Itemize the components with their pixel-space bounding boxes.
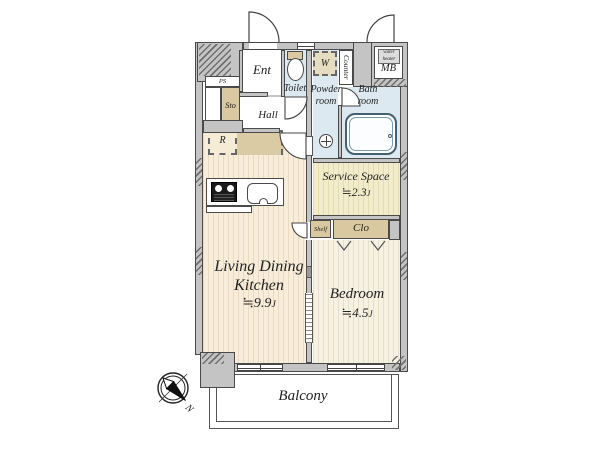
floor-plan: R water heater MB PS Sto W Counter Shelf… xyxy=(0,0,600,450)
bathtub-inner xyxy=(349,117,393,151)
meter-box-door-swing xyxy=(367,15,394,42)
washbasin xyxy=(319,134,333,148)
kitchen-lower-shelf xyxy=(206,206,252,213)
wall-powder-bath xyxy=(338,105,342,158)
service-space-label: Service Space xyxy=(314,169,398,183)
entrance-label: Ent xyxy=(243,62,281,78)
balcony-label: Balcony xyxy=(248,387,358,405)
stove-burner xyxy=(227,185,234,192)
left-compartment xyxy=(205,87,221,121)
sink xyxy=(247,183,278,204)
wall-below-storage xyxy=(203,120,243,133)
partition-pocket-door xyxy=(305,136,313,156)
hall-label: Hall xyxy=(248,109,288,122)
hatch-right-lower xyxy=(401,252,407,280)
wardrobe-box: W xyxy=(313,51,337,76)
hatch-left-upper xyxy=(196,158,202,186)
compass: N xyxy=(146,361,200,415)
counter-column: Counter xyxy=(339,50,353,85)
wall-hall-ldk xyxy=(243,128,280,133)
wall-right xyxy=(400,42,408,372)
wall-ent-hall xyxy=(238,92,268,97)
pipe-space-box: PS xyxy=(205,76,240,87)
storage-box: Sto xyxy=(221,87,240,121)
bedroom-area: ≒4.5J xyxy=(317,305,397,321)
meter-box-label: MB xyxy=(374,63,403,77)
powder-room-label: Powder room xyxy=(306,84,346,108)
kitchen-zone xyxy=(237,130,283,155)
bath-room-label: Bath room xyxy=(350,84,386,108)
closet-box: Clo xyxy=(333,219,389,239)
sink-faucet xyxy=(259,198,268,204)
ldk-label: Living Dining Kitchen xyxy=(200,257,318,295)
compass-north-label: N xyxy=(182,402,196,415)
stove-burner xyxy=(215,185,222,192)
stove-grill xyxy=(214,194,234,201)
wall-closet-right xyxy=(389,220,400,240)
ldk-area: ≒9.9J xyxy=(200,296,318,313)
bathtub xyxy=(345,113,397,155)
water-heater-box: water heater xyxy=(378,49,400,64)
bedroom-balcony-window xyxy=(327,364,385,371)
service-space-area: ≒2.3J xyxy=(321,185,391,199)
stove xyxy=(211,182,237,202)
washbasin-cross xyxy=(321,141,331,142)
entrance-door-opening xyxy=(249,42,277,50)
bathtub-drain xyxy=(388,134,392,138)
shelf-box: Shelf xyxy=(310,220,331,238)
hatch-pillar-bl xyxy=(202,353,224,364)
bedroom-label: Bedroom xyxy=(317,285,397,303)
hatch-right-upper xyxy=(401,152,407,180)
ldk-room xyxy=(203,133,306,363)
wall-counter-right xyxy=(353,42,372,87)
hatch-bottom-right xyxy=(392,356,406,370)
entrance-door-swing xyxy=(249,12,279,42)
toilet-window xyxy=(297,42,315,50)
hatch-top-left xyxy=(199,44,231,76)
water-heater-label: water heater xyxy=(383,50,396,62)
wall-service-top xyxy=(313,158,400,163)
refrigerator-label: R xyxy=(219,135,225,146)
toilet-bowl xyxy=(287,58,304,81)
ldk-balcony-window xyxy=(237,364,283,371)
